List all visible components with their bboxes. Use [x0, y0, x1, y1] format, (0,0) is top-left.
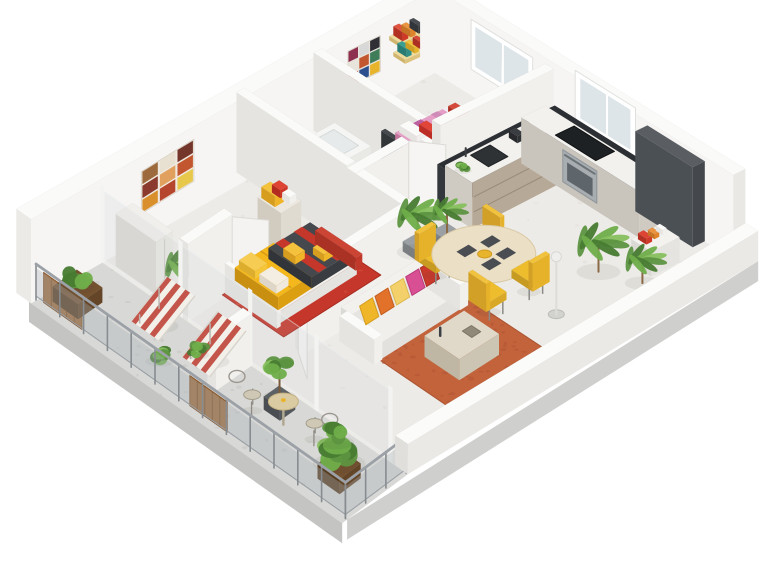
floor-lamp-shade — [551, 252, 561, 262]
glazing-mullion-4 — [314, 333, 318, 412]
dining-bowl — [478, 250, 492, 258]
floorplan-svg — [0, 0, 768, 574]
glazing-mullion-1 — [100, 185, 104, 264]
apartment-3d-floorplan — [0, 0, 768, 574]
bistro-lemon — [281, 398, 286, 402]
